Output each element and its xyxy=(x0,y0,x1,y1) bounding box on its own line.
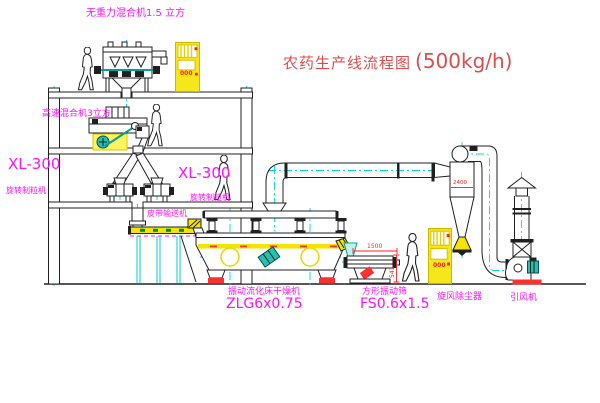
title-capacity: (500kg/h) xyxy=(415,49,512,73)
label-high-speed-mixer: 高速混合机3立方 xyxy=(42,110,111,119)
fluid-bed-dryer xyxy=(196,211,350,283)
dimension-cyclone: 2400 xyxy=(453,181,467,187)
dimension-sieve-length: 1500 xyxy=(367,244,382,250)
label-cyclone: 旋风除尘器 xyxy=(437,293,482,302)
label-granulator-left-name: 旋转制粒机 xyxy=(6,187,46,195)
label-sieve-model: FS0.6x1.5 xyxy=(360,297,430,311)
control-cabinet-upper xyxy=(176,42,200,91)
floor-discharge-chute xyxy=(130,208,146,229)
diagram-title: 农药生产线流程图 (500kg/h) xyxy=(283,49,513,73)
label-granulator-right-model: XL-300 xyxy=(178,166,230,181)
belt-conveyor xyxy=(128,219,207,283)
cabinet1-indicator: 000 xyxy=(180,71,193,77)
title-chinese: 农药生产线流程图 xyxy=(283,52,411,73)
label-dryer-model: ZLG6x0.75 xyxy=(226,297,303,311)
person-second-floor xyxy=(148,104,163,146)
label-gravity-mixer: 无重力混合机1.5 立方 xyxy=(86,9,185,19)
label-belt-conveyor: 皮带输送机 xyxy=(147,210,187,218)
dryer-spring-mounts xyxy=(207,218,347,234)
person-top-floor xyxy=(78,47,93,90)
pesticide-line-flow-diagram: 农药生产线流程图 (500kg/h) 无重力混合机1.5 立方 高速混合机3立方… xyxy=(0,0,600,403)
cyclone-separator xyxy=(450,146,478,256)
gravity-free-mixer-machine xyxy=(94,42,167,98)
label-fan: 引风机 xyxy=(510,294,537,303)
exhaust-duct xyxy=(263,163,450,212)
control-cabinet-ground xyxy=(428,229,451,284)
cabinet2-indicator: 000 xyxy=(433,263,446,269)
label-granulator-left-model: XL-300 xyxy=(8,157,60,172)
dimension-sieve-height: 541 xyxy=(390,267,396,278)
person-ground-floor xyxy=(403,234,420,282)
label-granulator-right-name: 旋转制粒机 xyxy=(190,194,230,202)
induced-draft-fan xyxy=(505,178,541,285)
